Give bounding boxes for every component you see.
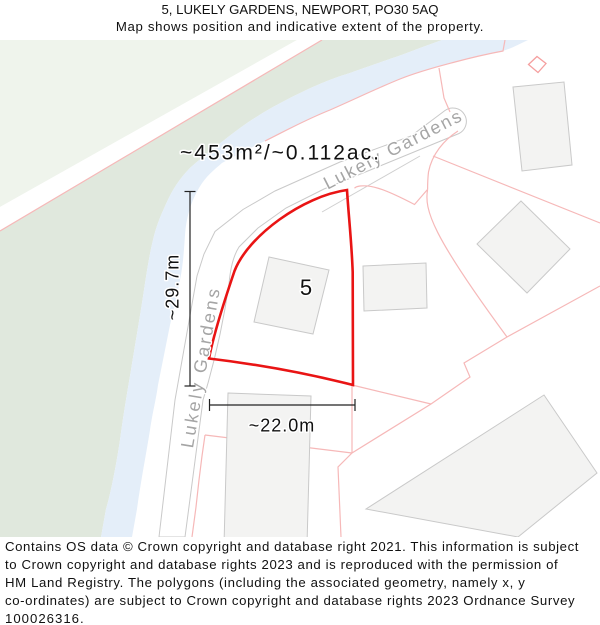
svg-text:HM Land Registry. The polygons: HM Land Registry. The polygons (includin…: [5, 575, 525, 590]
svg-text:~22.0m: ~22.0m: [249, 416, 316, 436]
svg-text:5, LUKELY GARDENS, NEWPORT, PO: 5, LUKELY GARDENS, NEWPORT, PO30 5AQ: [161, 2, 438, 17]
svg-text:~453m²/~0.112ac.: ~453m²/~0.112ac.: [180, 142, 381, 165]
svg-text:100026316.: 100026316.: [5, 611, 85, 625]
svg-text:~29.7m: ~29.7m: [162, 254, 182, 321]
svg-text:5: 5: [300, 275, 312, 300]
svg-text:to Crown copyright and databas: to Crown copyright and database rights 2…: [5, 557, 558, 572]
svg-text:Contains OS data © Crown copyr: Contains OS data © Crown copyright and d…: [5, 539, 579, 554]
svg-text:co-ordinates) are subject to C: co-ordinates) are subject to Crown copyr…: [5, 593, 575, 608]
svg-text:Map shows position and indicat: Map shows position and indicative extent…: [116, 19, 484, 34]
